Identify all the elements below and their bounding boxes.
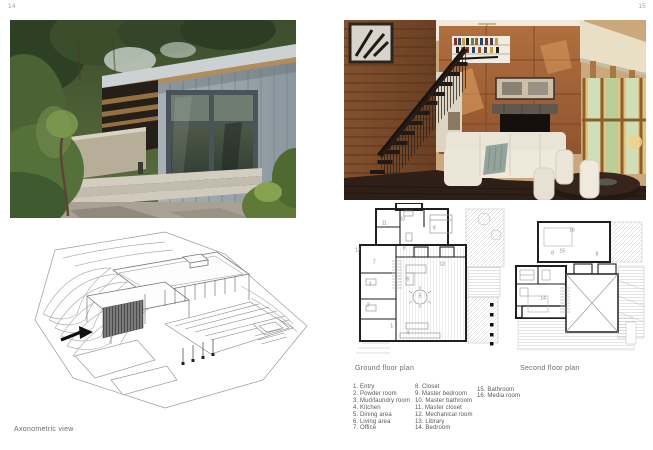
legend-item: 13. Library — [415, 419, 477, 426]
legend-item: 8. Closet — [415, 384, 477, 391]
room-number: 6 — [406, 278, 409, 283]
room-number: 8 — [403, 247, 406, 252]
interior-photo-graphic — [344, 20, 646, 200]
legend-item: 16. Media room — [477, 393, 520, 400]
legend-item: 14. Bedroom — [415, 425, 477, 432]
second-floor-room-numbers: 16815814 — [508, 218, 648, 352]
legend-item: 15. Bathroom — [477, 387, 520, 394]
room-number: 12 — [355, 248, 361, 253]
ground-floor-plan: 12345678910111213 — [348, 203, 506, 355]
room-number: 16 — [569, 229, 575, 234]
axonometric-drawing — [15, 228, 315, 413]
room-number: 2 — [367, 304, 370, 309]
ground-floor-caption: Ground floor plan — [355, 365, 414, 372]
room-number: 10 — [400, 218, 406, 223]
legend-item: 9. Master bedroom — [415, 391, 477, 398]
legend-column-1: 1. Entry2. Powder room3. Mud/laundry roo… — [353, 384, 415, 432]
legend-item: 2. Powder room — [353, 391, 415, 398]
room-number: 8 — [551, 252, 554, 257]
legend-item: 11. Master closet — [415, 405, 477, 412]
room-number: 7 — [373, 261, 376, 266]
room-legend: 1. Entry2. Powder room3. Mud/laundry roo… — [353, 384, 520, 432]
room-number: 15 — [560, 250, 566, 255]
room-number: 5 — [419, 295, 422, 300]
interior-photo — [344, 20, 646, 200]
legend-item: 7. Office — [353, 425, 415, 432]
room-number: 14 — [540, 297, 546, 302]
legend-item: 10. Master bathroom — [415, 398, 477, 405]
room-number: 1 — [390, 325, 393, 330]
exterior-photo — [10, 20, 296, 218]
legend-item: 1. Entry — [353, 384, 415, 391]
second-floor-caption: Second floor plan — [520, 365, 580, 372]
room-number: 11 — [382, 221, 387, 226]
room-number: 3 — [369, 282, 372, 287]
page-number-right: 15 — [638, 3, 646, 10]
room-number: 4 — [406, 332, 409, 337]
legend-column-2: 8. Closet9. Master bedroom10. Master bat… — [415, 384, 477, 432]
room-number: 13 — [440, 263, 446, 268]
legend-item: 5. Dining area — [353, 412, 415, 419]
room-number: 9 — [433, 227, 436, 232]
legend-item: 12. Mechanical room — [415, 412, 477, 419]
legend-column-3: 15. Bathroom16. Media room — [477, 384, 520, 400]
exterior-photo-graphic — [10, 20, 296, 218]
legend-item: 3. Mud/laundry room — [353, 398, 415, 405]
legend-item: 6. Living area — [353, 419, 415, 426]
legend-item: 4. Kitchen — [353, 405, 415, 412]
ground-floor-room-numbers: 12345678910111213 — [348, 203, 506, 355]
axonometric-graphic — [15, 228, 315, 413]
second-floor-plan: 16815814 — [508, 218, 648, 352]
axonometric-caption: Axonometric view — [14, 426, 74, 433]
room-number: 8 — [596, 252, 599, 257]
page-number-left: 14 — [8, 3, 16, 10]
